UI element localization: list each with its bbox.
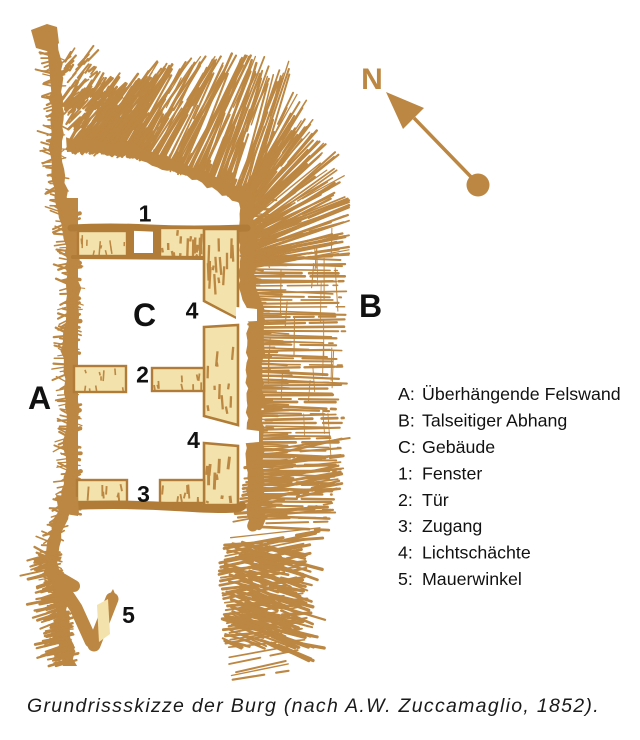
svg-text:1: 1 — [139, 201, 152, 227]
svg-text:N: N — [361, 63, 383, 96]
svg-text:Mauerwinkel: Mauerwinkel — [422, 569, 522, 589]
svg-text:2: 2 — [136, 362, 149, 388]
svg-text:3:: 3: — [398, 516, 413, 536]
svg-text:4:: 4: — [398, 543, 413, 563]
svg-text:5:: 5: — [398, 569, 413, 589]
svg-text:Talseitiger Abhang: Talseitiger Abhang — [422, 411, 567, 431]
svg-text:C: C — [133, 297, 156, 333]
svg-text:3: 3 — [137, 481, 150, 507]
svg-text:A: A — [28, 380, 51, 416]
svg-text:Tür: Tür — [422, 490, 449, 510]
svg-text:4: 4 — [187, 427, 200, 453]
svg-text:B:: B: — [398, 411, 415, 431]
svg-text:Fenster: Fenster — [422, 463, 482, 483]
svg-text:Überhängende Felswand: Überhängende Felswand — [422, 384, 621, 404]
svg-text:1:: 1: — [398, 463, 413, 483]
svg-text:Lichtschächte: Lichtschächte — [422, 543, 531, 563]
svg-text:A:: A: — [398, 384, 415, 404]
svg-text:Grundrissskizze der Burg (nach: Grundrissskizze der Burg (nach A.W. Zucc… — [27, 695, 600, 717]
svg-text:Gebäude: Gebäude — [422, 437, 495, 457]
svg-text:2:: 2: — [398, 490, 413, 510]
svg-text:B: B — [359, 288, 382, 324]
svg-text:5: 5 — [122, 602, 135, 628]
svg-text:Zugang: Zugang — [422, 516, 482, 536]
svg-text:4: 4 — [186, 298, 199, 324]
svg-text:C:: C: — [398, 437, 416, 457]
